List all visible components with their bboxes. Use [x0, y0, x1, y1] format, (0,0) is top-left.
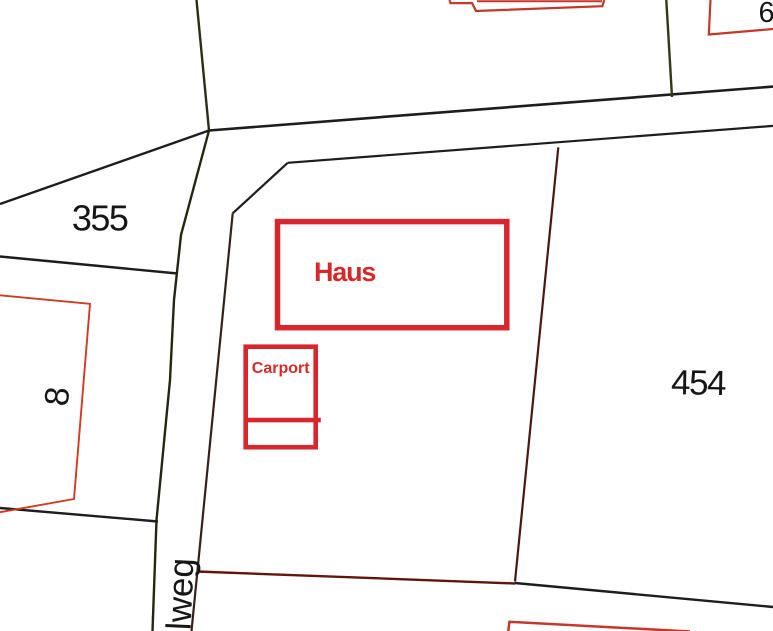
svg-text:Carport: Carport: [252, 360, 310, 377]
svg-text:355: 355: [72, 198, 128, 239]
svg-text:454: 454: [671, 363, 727, 403]
svg-text:lweg: lweg: [160, 557, 202, 631]
svg-text:8: 8: [38, 385, 78, 408]
svg-text:Haus: Haus: [314, 257, 375, 287]
svg-text:6: 6: [759, 0, 773, 29]
